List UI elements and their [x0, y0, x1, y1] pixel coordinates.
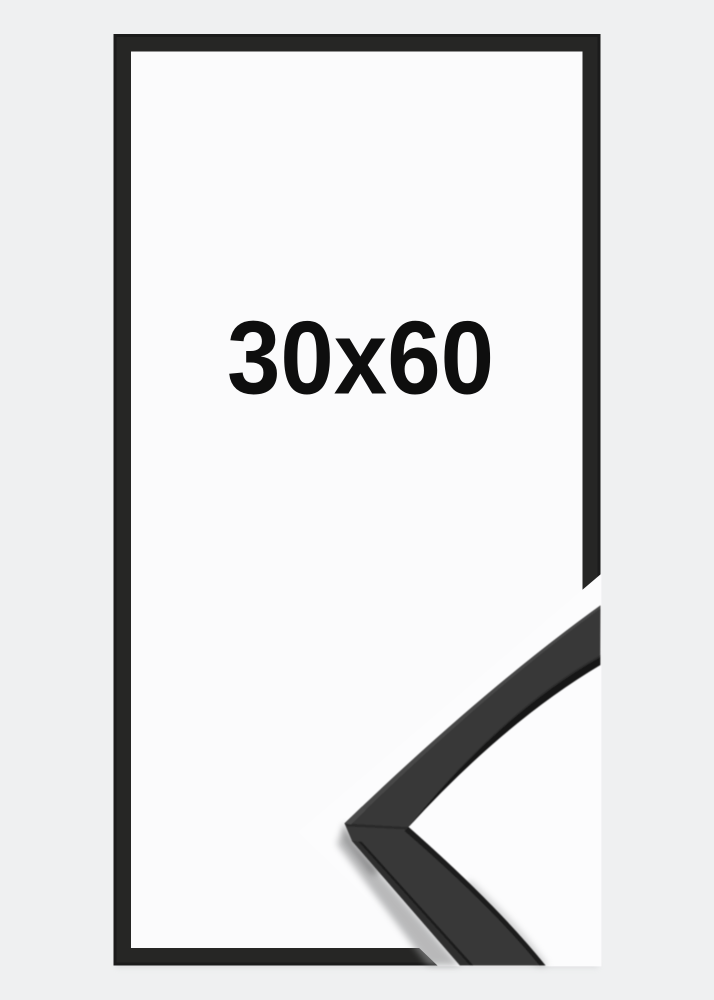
svg-text:30x60: 30x60 [227, 301, 494, 417]
